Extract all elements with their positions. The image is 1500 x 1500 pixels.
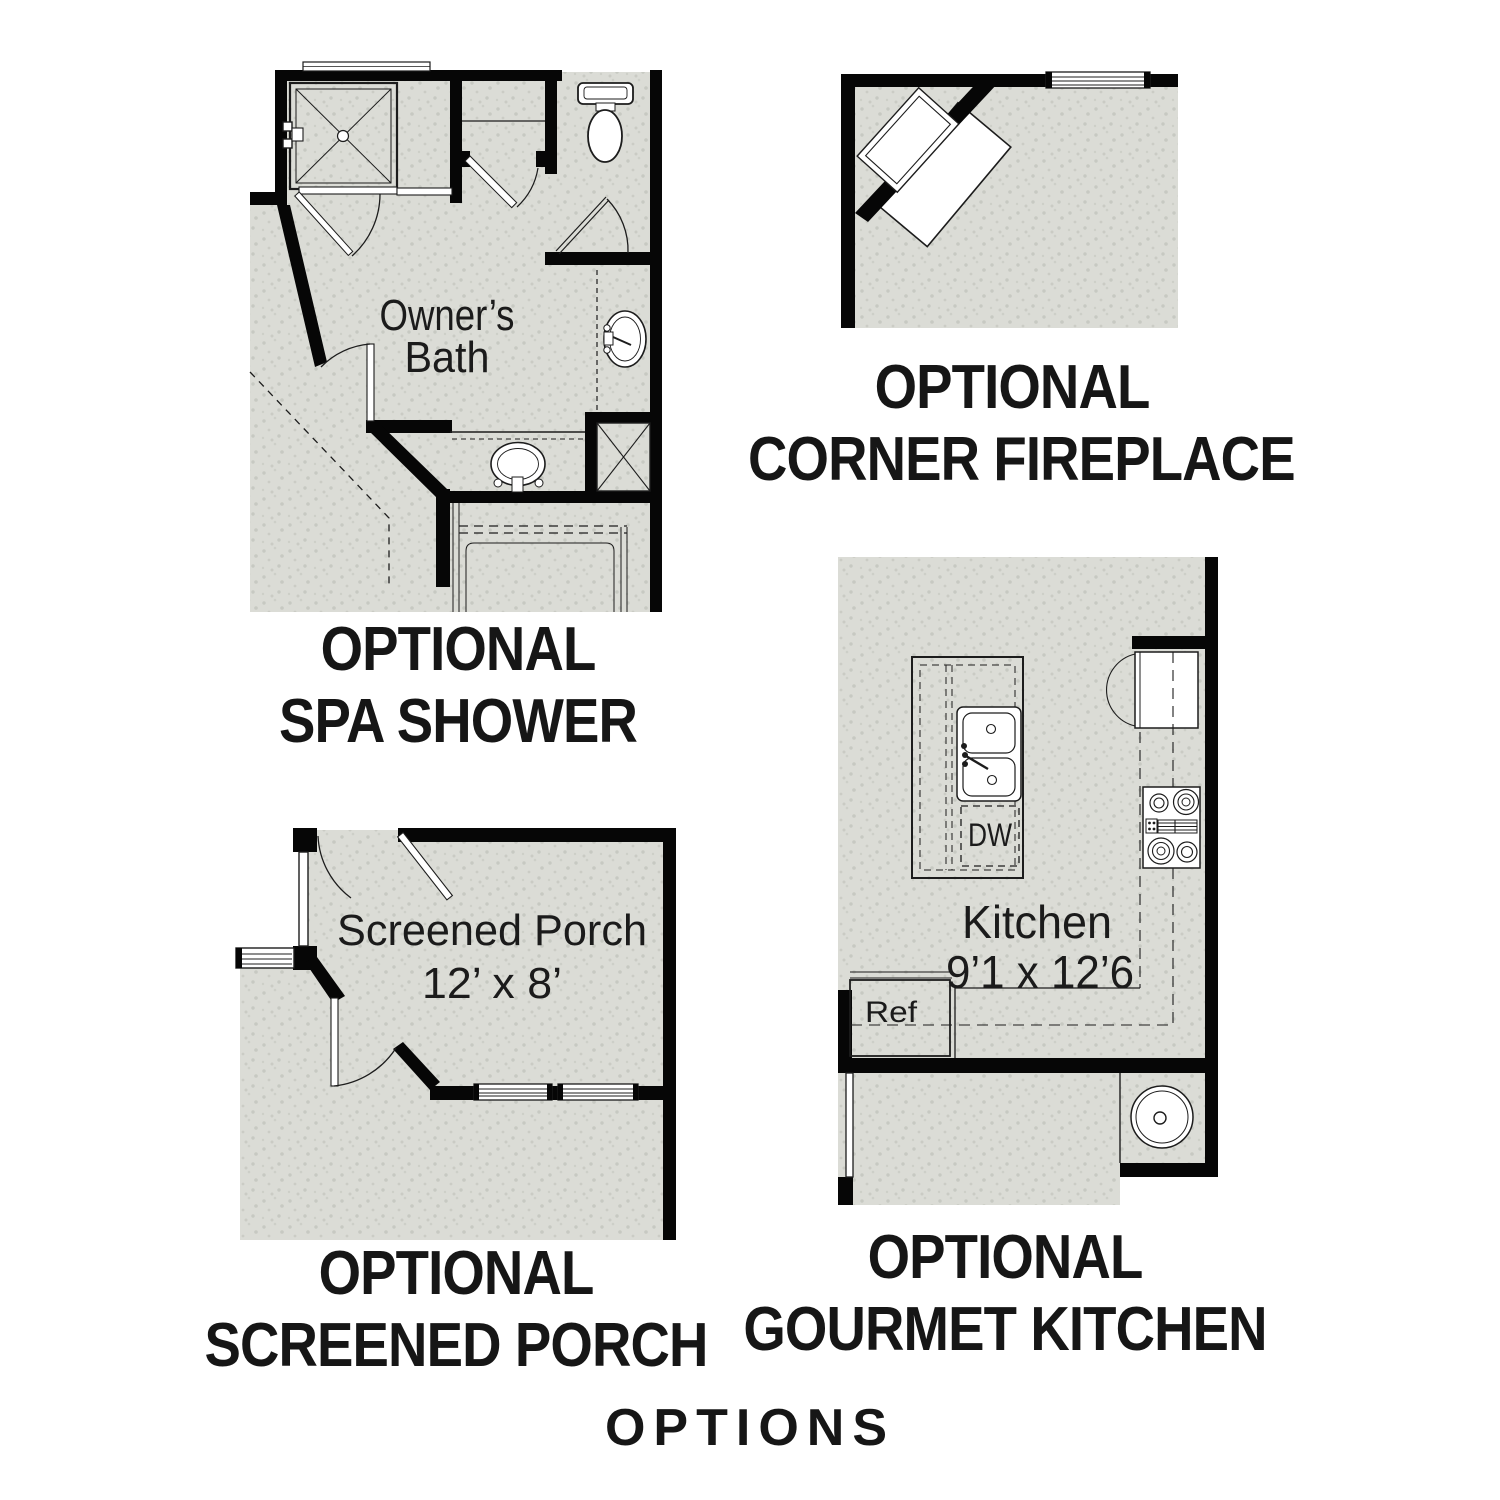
caption-line: GOURMET KITCHEN: [741, 1294, 1269, 1366]
options-title: OPTIONS: [0, 1398, 1500, 1458]
window: [1046, 72, 1150, 88]
options-sheet: Owner’s Bath: [0, 0, 1500, 1500]
screened-porch-caption: OPTIONAL SCREENED PORCH: [192, 1238, 720, 1382]
room-label: 12’ x 8’: [422, 959, 562, 1008]
room-label: Bath: [405, 333, 490, 382]
refrigerator-label: Ref: [865, 996, 918, 1029]
spa-shower-plan: Owner’s Bath: [240, 58, 690, 618]
half-wall: [397, 188, 452, 195]
caption-line: CORNER FIREPLACE: [748, 424, 1276, 496]
caption-line: OPTIONAL: [748, 352, 1276, 424]
dishwasher-label: DW: [968, 817, 1013, 853]
corner-fireplace-plan: [833, 58, 1185, 338]
caption-line: SCREENED PORCH: [192, 1310, 720, 1382]
spa-shower-caption: OPTIONAL SPA SHOWER: [194, 614, 722, 758]
window: [236, 948, 294, 968]
screen-wall: [299, 852, 308, 946]
caption-line: OPTIONAL: [194, 614, 722, 686]
porch-window: [558, 1084, 638, 1100]
gourmet-kitchen-caption: OPTIONAL GOURMET KITCHEN: [741, 1222, 1269, 1366]
island-sink-icon: [957, 707, 1021, 801]
room-label: Screened Porch: [337, 906, 647, 955]
gourmet-kitchen-plan: DW: [833, 555, 1223, 1215]
caption-line: SPA SHOWER: [194, 686, 722, 758]
shower-head-icon: [283, 122, 292, 131]
caption-line: OPTIONAL: [741, 1222, 1269, 1294]
screened-porch-plan: Screened Porch 12’ x 8’: [233, 818, 685, 1242]
cooktop-icon: [1143, 787, 1200, 868]
porch-window: [474, 1084, 552, 1100]
room-label: 9’1 x 12’6: [946, 946, 1134, 998]
porch-post: [293, 828, 317, 852]
caption-line: OPTIONAL: [192, 1238, 720, 1310]
corner-fireplace-caption: OPTIONAL CORNER FIREPLACE: [748, 352, 1276, 496]
window: [303, 62, 430, 71]
room-label: Kitchen: [962, 896, 1112, 948]
